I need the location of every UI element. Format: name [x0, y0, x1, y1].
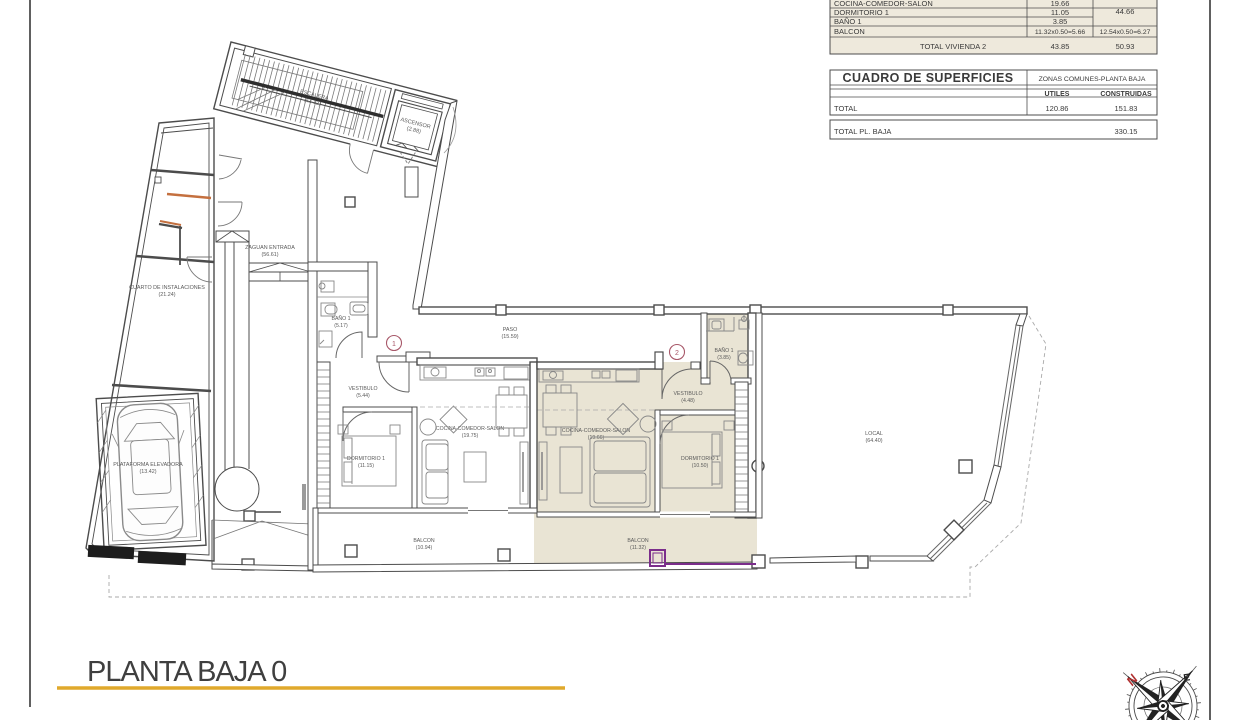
svg-text:1: 1	[392, 341, 396, 348]
svg-text:(3.85): (3.85)	[717, 355, 731, 361]
svg-text:19.66: 19.66	[1051, 0, 1070, 8]
svg-text:50.93: 50.93	[1116, 42, 1135, 51]
svg-text:BAÑO 1: BAÑO 1	[331, 315, 350, 322]
svg-text:VESTIBULO: VESTIBULO	[673, 391, 702, 397]
svg-text:LOCAL: LOCAL	[865, 431, 883, 437]
svg-text:(5.17): (5.17)	[334, 323, 348, 329]
svg-text:PLATAFORMA ELEVADORA: PLATAFORMA ELEVADORA	[113, 462, 183, 468]
svg-text:COCINA-COMEDOR-SALON: COCINA-COMEDOR-SALON	[562, 428, 631, 434]
svg-text:TOTAL VIVIENDA 2: TOTAL VIVIENDA 2	[920, 42, 986, 51]
svg-text:(15.59): (15.59)	[501, 334, 518, 340]
svg-text:CUARTO DE INSTALACIONES: CUARTO DE INSTALACIONES	[129, 285, 205, 291]
svg-text:(19.75): (19.75)	[462, 433, 479, 439]
svg-text:330.15: 330.15	[1115, 127, 1138, 136]
svg-text:COCINA-COMEDOR-SALON: COCINA-COMEDOR-SALON	[834, 0, 933, 8]
svg-text:DORMITORIO 1: DORMITORIO 1	[347, 456, 385, 462]
svg-text:DORMITORIO 1: DORMITORIO 1	[681, 456, 719, 462]
svg-text:2: 2	[675, 350, 679, 357]
svg-text:PASO: PASO	[503, 327, 518, 333]
svg-text:BAÑO 1: BAÑO 1	[714, 347, 733, 354]
svg-text:(10.50): (10.50)	[692, 463, 709, 469]
svg-text:(11.32): (11.32)	[630, 545, 646, 551]
svg-text:DORMITORIO 1: DORMITORIO 1	[834, 8, 889, 17]
svg-text:VESTIBULO: VESTIBULO	[348, 386, 377, 392]
svg-text:COCINA-COMEDOR-SALON: COCINA-COMEDOR-SALON	[436, 426, 505, 432]
svg-text:12.54x0.50=6.27: 12.54x0.50=6.27	[1100, 29, 1151, 36]
svg-text:(10.94): (10.94)	[416, 545, 433, 551]
svg-text:BAÑO 1: BAÑO 1	[834, 17, 862, 26]
svg-text:151.83: 151.83	[1115, 104, 1138, 113]
svg-text:CUADRO DE SUPERFICIES: CUADRO DE SUPERFICIES	[843, 71, 1014, 85]
svg-text:43.85: 43.85	[1051, 42, 1070, 51]
svg-text:(13.42): (13.42)	[139, 469, 156, 475]
svg-text:(11.15): (11.15)	[358, 463, 374, 469]
svg-text:(21.24): (21.24)	[158, 292, 175, 298]
svg-text:BALCON: BALCON	[834, 27, 865, 36]
svg-text:CONSTRUIDAS: CONSTRUIDAS	[1100, 91, 1152, 98]
svg-text:(5.44): (5.44)	[356, 393, 370, 399]
svg-text:44.66: 44.66	[1116, 7, 1135, 16]
svg-text:11.05: 11.05	[1051, 8, 1069, 17]
svg-text:UTILES: UTILES	[1045, 91, 1070, 98]
svg-text:BALCON: BALCON	[413, 538, 435, 544]
svg-text:TOTAL PL. BAJA: TOTAL PL. BAJA	[834, 127, 891, 136]
svg-text:BALCON: BALCON	[627, 538, 649, 544]
svg-text:(56.61): (56.61)	[261, 252, 278, 258]
svg-text:(64.40): (64.40)	[865, 438, 882, 444]
svg-text:ZONAS COMUNES-PLANTA BAJA: ZONAS COMUNES-PLANTA BAJA	[1039, 76, 1146, 83]
svg-text:TOTAL: TOTAL	[834, 104, 857, 113]
svg-text:ZAGUAN ENTRADA: ZAGUAN ENTRADA	[245, 245, 295, 251]
svg-text:3.85: 3.85	[1053, 17, 1068, 26]
svg-text:PLANTA BAJA 0: PLANTA BAJA 0	[87, 656, 286, 688]
svg-text:(4.48): (4.48)	[681, 398, 695, 404]
svg-text:120.86: 120.86	[1046, 104, 1069, 113]
svg-text:11.32x0.50=5.66: 11.32x0.50=5.66	[1035, 29, 1086, 36]
